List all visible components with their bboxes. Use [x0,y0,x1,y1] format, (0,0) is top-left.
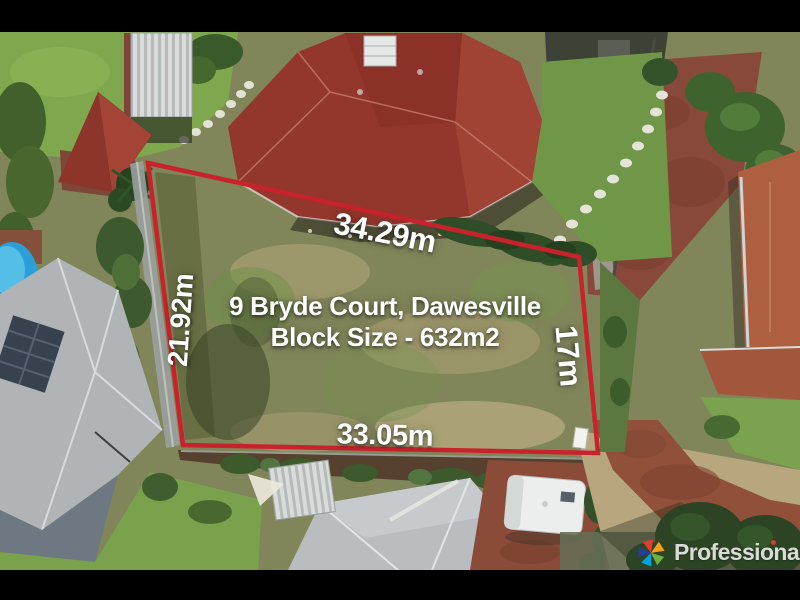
star-icon [633,534,669,570]
logo-i-dot [771,540,776,545]
aerial-photo [0,32,800,570]
agency-name-text: Professionals [674,539,800,565]
agency-logo: Professionals [633,534,800,570]
listing-photo-canvas: 34.29m 21.92m 17m 33.05m 9 Bryde Court, … [0,0,800,600]
aerial-photo-art [0,32,800,570]
agency-name: Professionals [674,539,800,566]
